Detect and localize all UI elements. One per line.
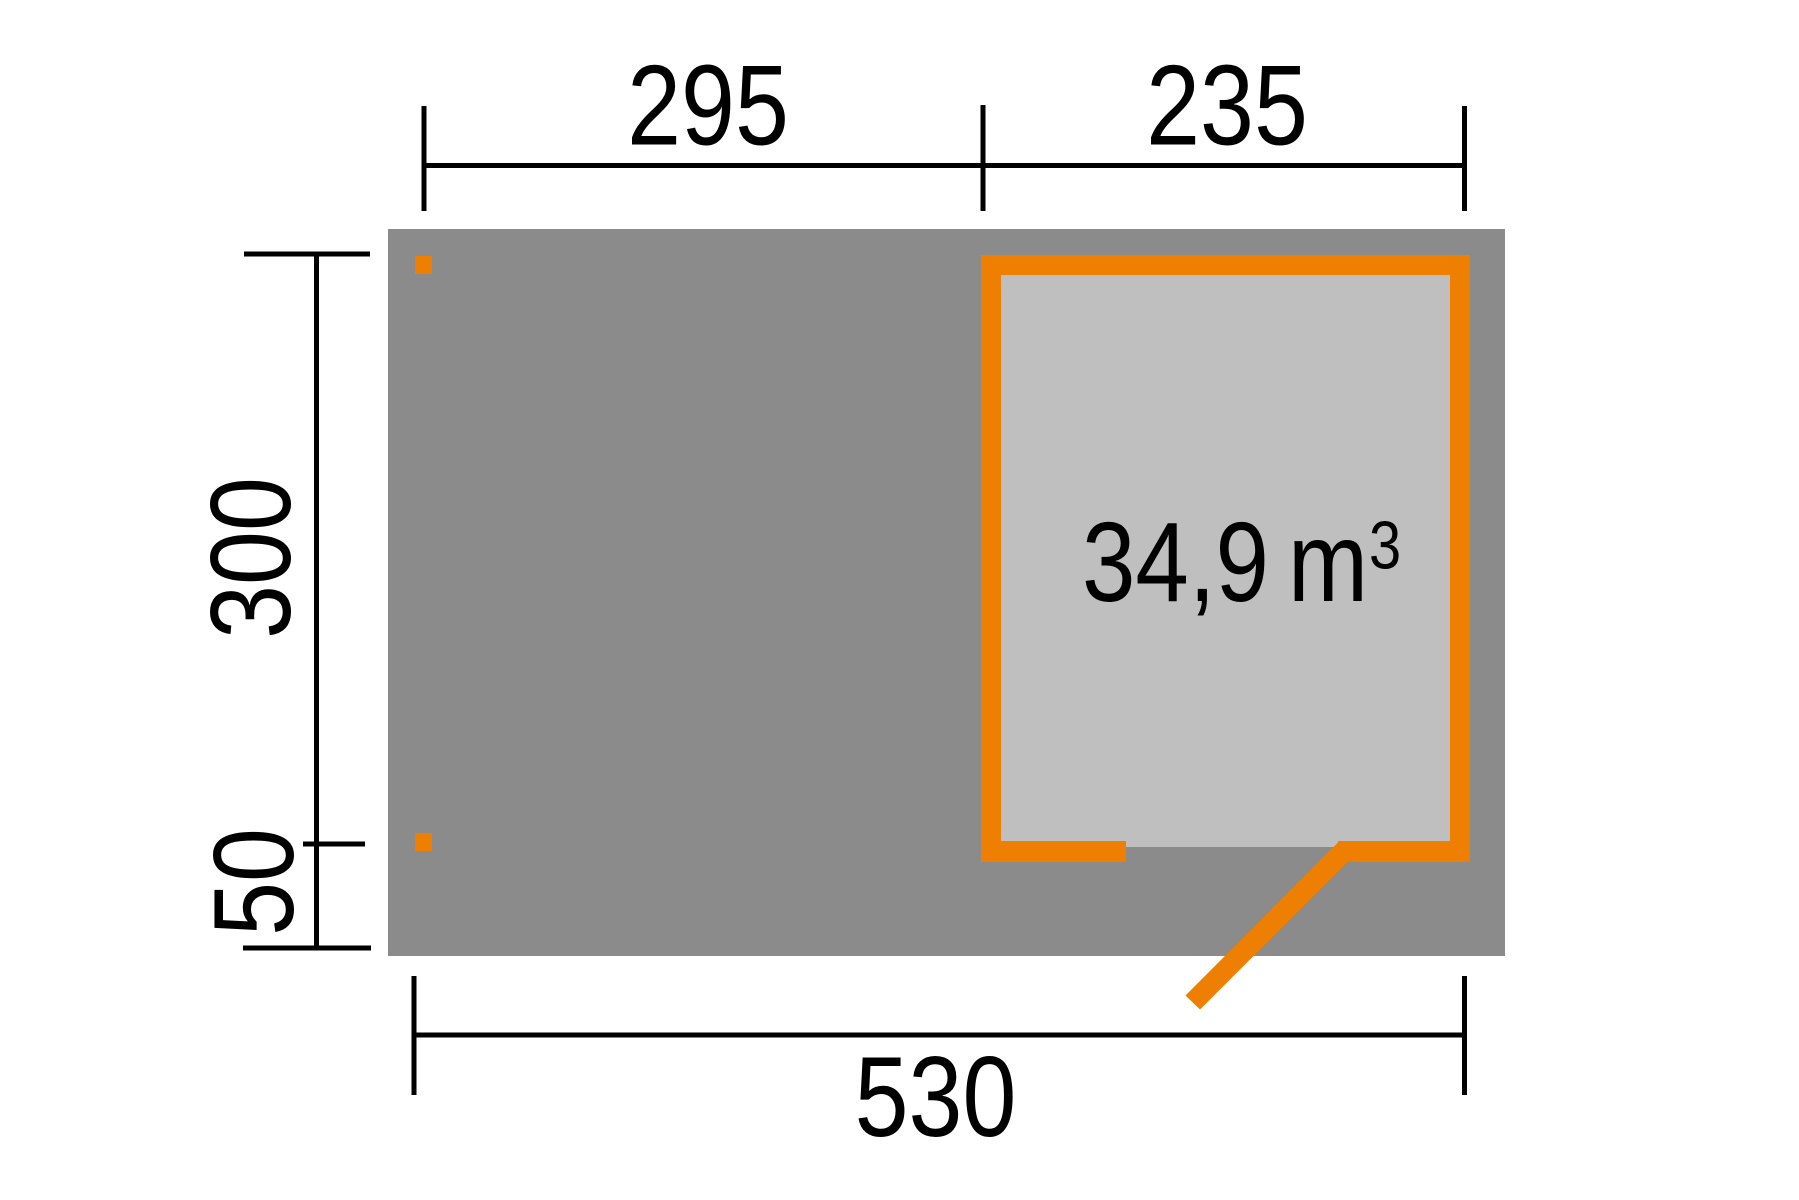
svg-text:295: 295 [627,42,789,169]
svg-text:300: 300 [188,477,315,639]
svg-text:235: 235 [1146,42,1308,169]
svg-text:34,9: 34,9 [1082,500,1269,626]
svg-text:3: 3 [1369,508,1401,583]
svg-text:m: m [1288,500,1368,626]
svg-text:50: 50 [191,828,318,936]
svg-text:530: 530 [855,1034,1017,1161]
